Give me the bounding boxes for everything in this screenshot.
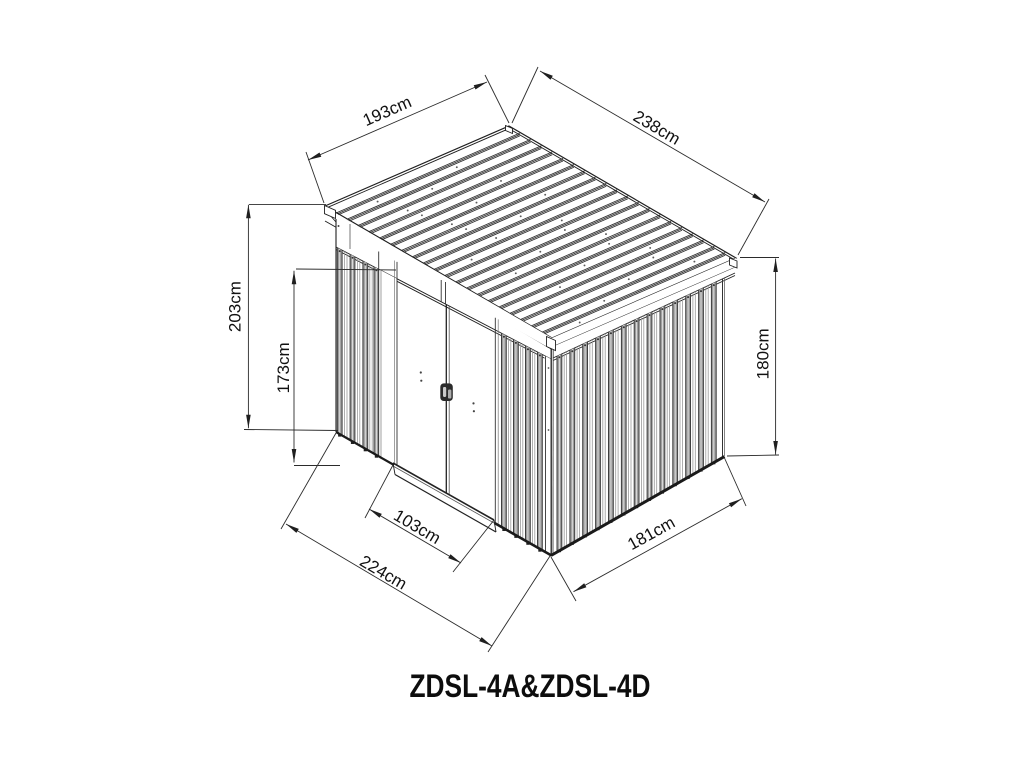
svg-text:ZDSL-4A&ZDSL-4D: ZDSL-4A&ZDSL-4D — [410, 668, 651, 704]
svg-text:173cm: 173cm — [274, 342, 293, 393]
svg-text:180cm: 180cm — [754, 328, 773, 379]
svg-text:203cm: 203cm — [225, 281, 244, 332]
